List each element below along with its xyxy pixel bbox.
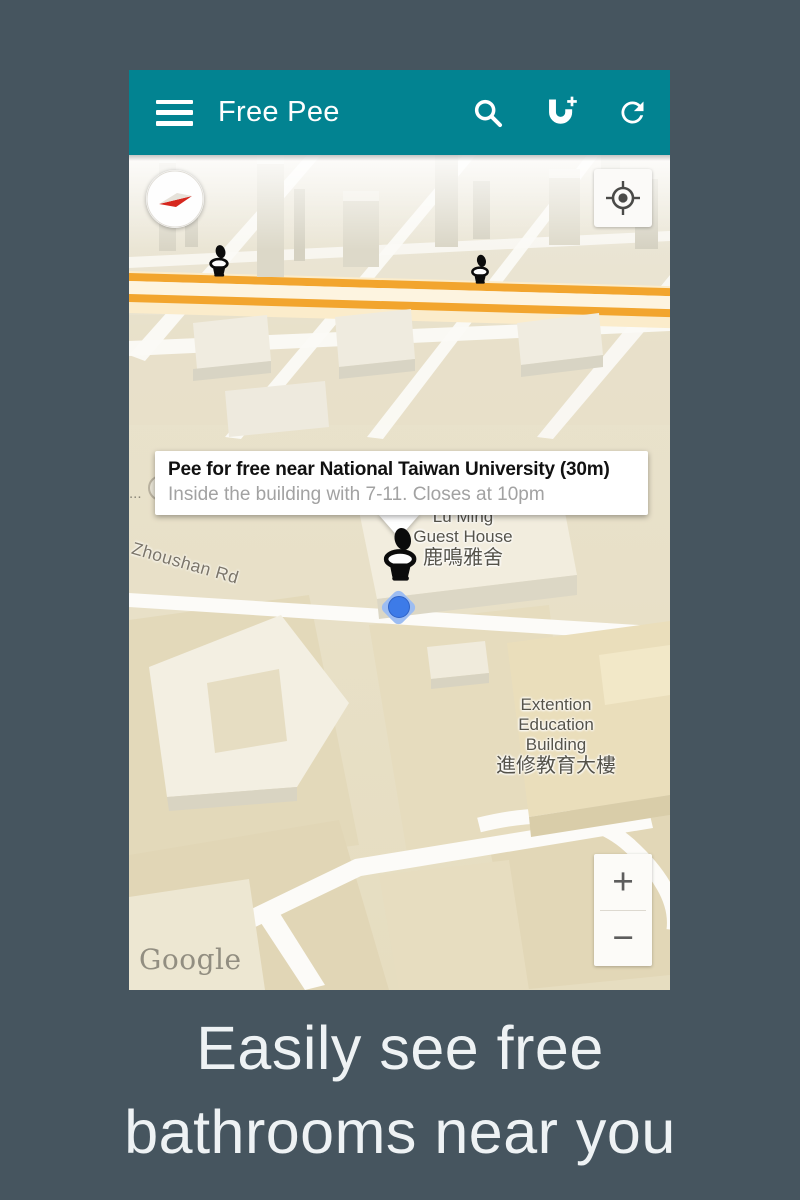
map-canvas[interactable]: ... Pee for free near National Taiwan Un… [129,155,670,990]
appbar-shadow [129,155,670,161]
app-title: Free Pee [218,96,340,129]
compass-icon [146,170,204,228]
zoom-control: + − [594,854,652,966]
add-toilet-icon [542,95,578,131]
google-logo: Google [139,943,242,976]
refresh-button[interactable] [614,95,650,131]
info-window[interactable]: Pee for free near National Taiwan Univer… [155,451,648,515]
toilet-marker[interactable] [207,243,232,282]
current-location-dot [388,596,410,618]
promo-caption-line2: bathrooms near you [0,1090,800,1174]
info-window-title: Pee for free near National Taiwan Univer… [168,459,635,481]
promo-caption-line1: Easily see free [0,1006,800,1090]
zoom-out-button[interactable]: − [594,911,652,967]
search-button[interactable] [470,95,506,131]
poi-label-extension-building: Extention Education Building 進修教育大樓 [481,695,631,779]
add-toilet-button[interactable] [542,95,578,131]
poi-label-guest-house: Lu Ming Guest House 鹿鳴雅舍 [407,507,519,571]
truncated-label: ... [129,485,142,502]
my-location-icon [603,178,643,218]
info-window-subtitle: Inside the building with 7-11. Closes at… [168,484,635,506]
toilet-marker[interactable] [469,253,492,289]
compass-button[interactable] [146,170,204,228]
phone-screenshot-frame: Free Pee [129,70,670,990]
app-bar: Free Pee [129,70,670,155]
promo-caption: Easily see free bathrooms near you [0,1006,800,1174]
menu-icon[interactable] [156,100,193,126]
zoom-in-button[interactable]: + [594,854,652,910]
selected-toilet-marker[interactable] [380,525,422,586]
my-location-button[interactable] [594,169,652,227]
search-icon [471,96,505,130]
refresh-icon [616,96,649,129]
